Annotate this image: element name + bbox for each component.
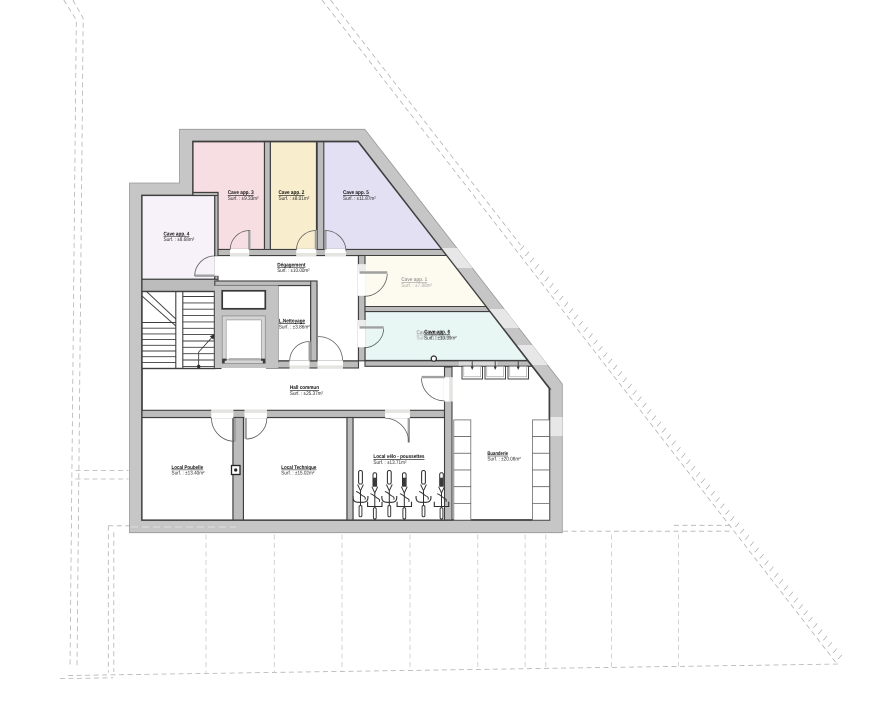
svg-text:Surf. : ±8.01m²: Surf. : ±8.01m² [279, 196, 310, 202]
svg-text:Surf. : ±3.86m²: Surf. : ±3.86m² [279, 324, 310, 330]
svg-text:Surf. : ±13.71m²: Surf. : ±13.71m² [373, 460, 406, 466]
svg-text:Surf. : ±15.02m²: Surf. : ±15.02m² [281, 471, 314, 477]
svg-text:Surf. : ±13.40m²: Surf. : ±13.40m² [172, 471, 205, 477]
svg-text:Surf. : ±20.08m²: Surf. : ±20.08m² [487, 457, 521, 463]
svg-text:Surf. : ±8.68m²: Surf. : ±8.68m² [164, 237, 195, 243]
svg-text:Surf. : ±10.00m²: Surf. : ±10.00m² [277, 268, 310, 274]
svg-text:Surf. : ±25.37m²: Surf. : ±25.37m² [290, 391, 323, 397]
svg-text:Surf. : ±10.39m²: Surf. : ±10.39m² [424, 336, 457, 342]
svg-text:Surf. : ±9.33m²: Surf. : ±9.33m² [228, 196, 259, 202]
svg-text:Surf. : ±11.87m²: Surf. : ±11.87m² [343, 196, 376, 202]
svg-text:Surf. : ±7.88m²: Surf. : ±7.88m² [401, 283, 432, 289]
